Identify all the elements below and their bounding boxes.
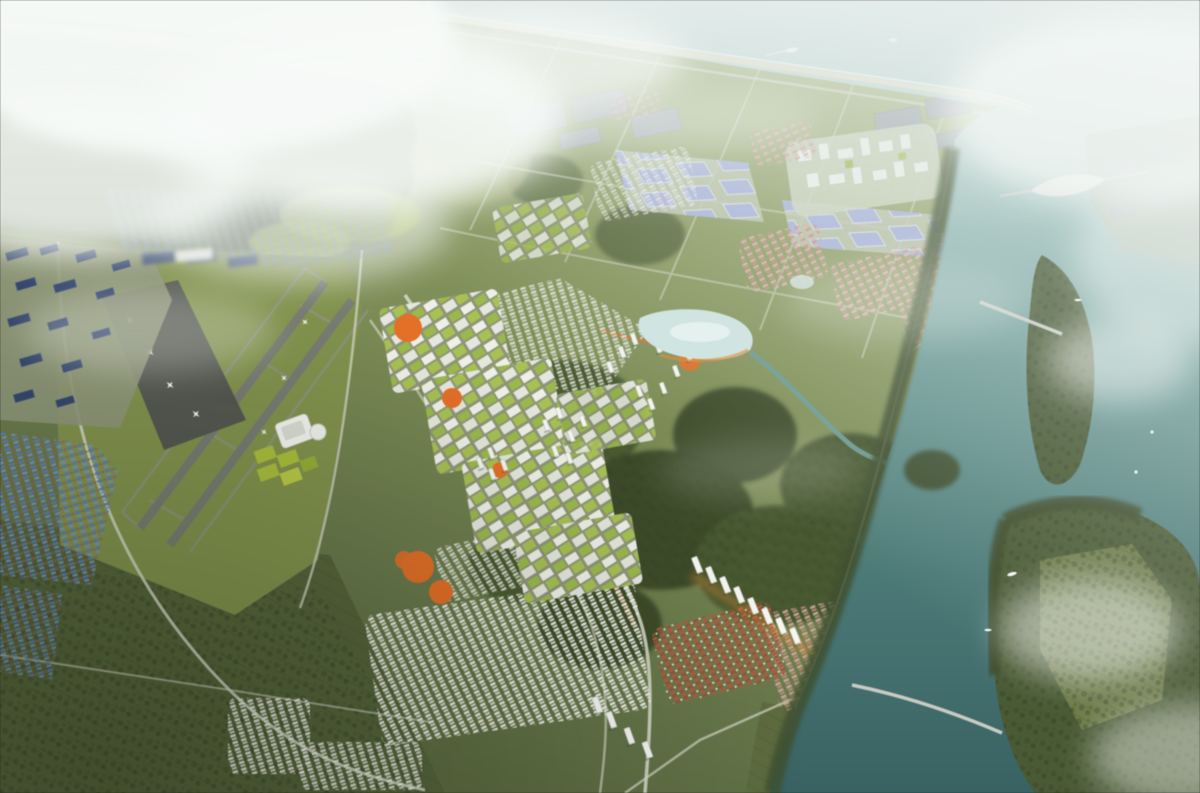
masterplan-scene bbox=[0, 0, 1200, 793]
aerial-rendering bbox=[0, 0, 1200, 793]
